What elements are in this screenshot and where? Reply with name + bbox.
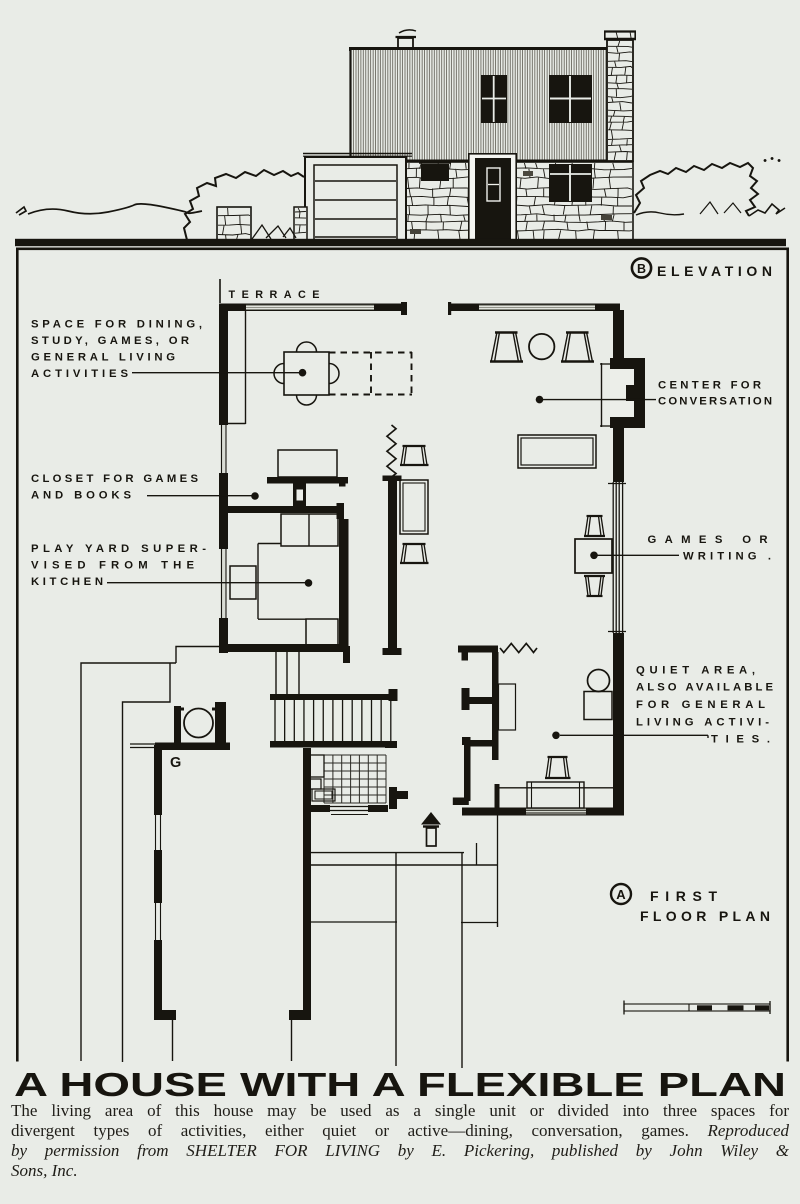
svg-text:ACTIVITIES: ACTIVITIES [31, 368, 128, 380]
svg-text:B: B [637, 262, 646, 276]
svg-text:AND BOOKS: AND BOOKS [31, 490, 131, 502]
svg-text:A: A [616, 887, 626, 902]
svg-text:STUDY, GAMES, OR: STUDY, GAMES, OR [31, 335, 189, 347]
svg-text:CLOSET FOR GAMES: CLOSET FOR GAMES [31, 473, 198, 485]
svg-text:ELEVATION: ELEVATION [657, 263, 772, 279]
svg-text:A HOUSE WITH A FLEXIBLE PLAN: A HOUSE WITH A FLEXIBLE PLAN [14, 1066, 786, 1103]
svg-text:G: G [170, 755, 181, 771]
svg-text:FOR GENERAL: FOR GENERAL [636, 699, 765, 711]
svg-text:FLOOR PLAN: FLOOR PLAN [640, 908, 770, 924]
svg-text:CONVERSATION: CONVERSATION [658, 396, 772, 408]
